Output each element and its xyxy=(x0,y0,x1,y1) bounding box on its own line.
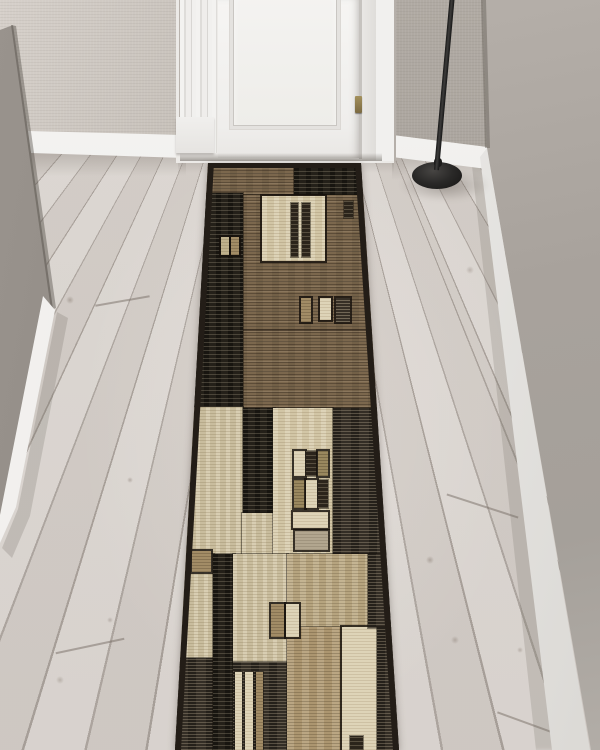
rug-block-darkbar xyxy=(306,451,317,476)
rug-block-darkbar xyxy=(318,480,328,508)
hallway-scene xyxy=(0,0,600,750)
rug-wrapper xyxy=(0,0,600,750)
rug-block-creambright xyxy=(342,627,378,750)
rug-block-black xyxy=(243,408,275,514)
rug-block-creambright xyxy=(294,451,305,476)
rug-block-graytan xyxy=(295,531,328,550)
rug-block-darkbar xyxy=(344,201,353,218)
rug-block-tanstreak xyxy=(287,627,343,750)
rug-block-tan xyxy=(256,672,263,750)
rug-block-beige xyxy=(221,237,229,255)
rug-block-creambright xyxy=(320,298,331,320)
rug-block-blackstreak xyxy=(333,408,395,555)
rug-block-darkbar xyxy=(350,736,363,750)
rug-block-tan xyxy=(231,237,239,255)
rug-block-creambright xyxy=(306,480,317,508)
rug-block-darkbar xyxy=(291,203,298,257)
rug-block-tanlt xyxy=(287,554,369,628)
rug-block-darkbar xyxy=(302,203,310,257)
rug-block-beigelt xyxy=(242,513,275,555)
rug-block-darkstripes xyxy=(336,298,350,322)
runner-rug xyxy=(0,0,600,750)
rug-block-creambright xyxy=(286,604,299,637)
rug-block-tan xyxy=(271,604,284,637)
rug-block-creambright xyxy=(293,512,328,528)
rug-block-tan xyxy=(192,551,211,572)
rug-block-black xyxy=(213,554,235,750)
rug-block-tanmottle xyxy=(318,451,328,476)
rug-block-tanmottle xyxy=(294,480,305,508)
rug-block-creambright xyxy=(245,672,253,750)
rug-block-tan xyxy=(301,298,311,322)
rug-block-creambright xyxy=(235,672,242,750)
